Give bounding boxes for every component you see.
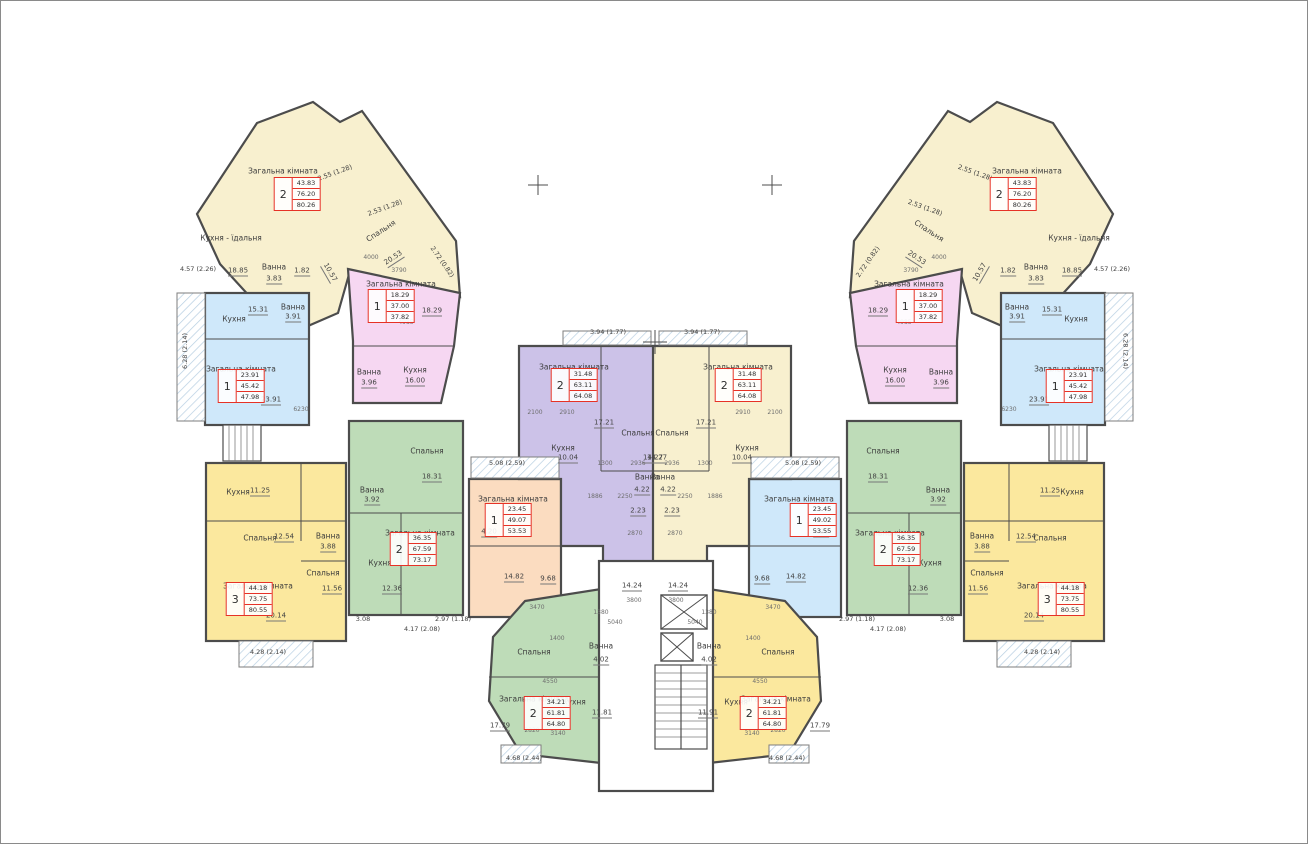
apartment-areas: 34.2161.8164.80 xyxy=(759,697,786,729)
staircase-right xyxy=(1049,425,1087,461)
apartment-areas: 23.4549.0253.55 xyxy=(809,504,836,536)
apartment-info-box: 344.1873.7580.55 xyxy=(1038,582,1085,616)
apartment-info-box: 243.8376.2080.26 xyxy=(990,177,1037,211)
apartment-area-value: 61.81 xyxy=(759,708,786,719)
apartment-area-value: 45.42 xyxy=(237,381,264,392)
apartment-info-box: 234.2161.8164.80 xyxy=(740,696,787,730)
apartment-areas: 18.2937.0037.82 xyxy=(915,290,942,322)
apartment-rooms-count: 2 xyxy=(991,178,1009,210)
apartment-area-value: 47.98 xyxy=(237,392,264,402)
apartment-rooms-count: 3 xyxy=(227,583,245,615)
apartment-area-value: 61.81 xyxy=(543,708,570,719)
apartment-rooms-count: 1 xyxy=(1047,370,1065,402)
apartment-info-box: 231.4863.1164.08 xyxy=(715,368,762,402)
apartment-area-value: 37.82 xyxy=(387,312,414,322)
building-core xyxy=(599,561,713,791)
apartment-area-value: 80.26 xyxy=(293,200,320,210)
apartment-areas: 31.4863.1164.08 xyxy=(734,369,761,401)
apartment-area-value: 64.08 xyxy=(734,391,761,401)
apartment-area-value: 45.42 xyxy=(1065,381,1092,392)
apartment-area-value: 37.82 xyxy=(915,312,942,322)
apartment-area-value: 49.02 xyxy=(809,515,836,526)
apartment-info-box: 123.4549.0253.55 xyxy=(790,503,837,537)
apartment-areas: 44.1873.7580.55 xyxy=(245,583,272,615)
apartment-2k-green-left[interactable] xyxy=(349,421,463,615)
apartment-1k-blue-center[interactable] xyxy=(749,479,841,617)
apartment-area-value: 73.17 xyxy=(893,555,920,565)
apartment-rooms-count: 2 xyxy=(875,533,893,565)
apartment-areas: 36.3567.5973.17 xyxy=(409,533,436,565)
apartment-area-value: 80.26 xyxy=(1009,200,1036,210)
apartment-area-value: 76.20 xyxy=(1009,189,1036,200)
apartment-1k-blue-top-left[interactable] xyxy=(205,293,309,425)
apartment-rooms-count: 2 xyxy=(525,697,543,729)
apartment-info-box: 118.2937.0037.82 xyxy=(896,289,943,323)
apartment-rooms-count: 2 xyxy=(391,533,409,565)
apartment-info-box: 118.2937.0037.82 xyxy=(368,289,415,323)
apartment-area-value: 73.75 xyxy=(1057,594,1084,605)
apartment-areas: 23.9145.4247.98 xyxy=(1065,370,1092,402)
apartment-info-box: 243.8376.2080.26 xyxy=(274,177,321,211)
apartment-areas: 31.4863.1164.08 xyxy=(570,369,597,401)
apartment-area-value: 37.00 xyxy=(387,301,414,312)
apartment-area-value: 80.55 xyxy=(1057,605,1084,615)
apartment-area-value: 36.35 xyxy=(409,533,436,544)
apartment-rooms-count: 2 xyxy=(716,369,734,401)
apartment-area-value: 34.21 xyxy=(543,697,570,708)
apartment-areas: 23.9145.4247.98 xyxy=(237,370,264,402)
apartment-area-value: 67.59 xyxy=(893,544,920,555)
apartment-area-value: 23.91 xyxy=(237,370,264,381)
apartment-area-value: 23.91 xyxy=(1065,370,1092,381)
apartment-area-value: 80.55 xyxy=(245,605,272,615)
staircase-left xyxy=(223,425,261,461)
apartment-areas: 34.2161.8164.80 xyxy=(543,697,570,729)
apartment-1k-blue-top-right[interactable] xyxy=(1001,293,1105,425)
apartment-area-value: 31.48 xyxy=(570,369,597,380)
apartment-info-box: 236.3567.5973.17 xyxy=(874,532,921,566)
apartment-area-value: 53.53 xyxy=(504,526,531,536)
apartment-area-value: 76.20 xyxy=(293,189,320,200)
apartment-area-value: 53.55 xyxy=(809,526,836,536)
apartment-area-value: 64.80 xyxy=(543,719,570,729)
apartment-area-value: 18.29 xyxy=(915,290,942,301)
floor-plan: Загальна кімнатаСпальня20.53Кухня - їдал… xyxy=(0,0,1308,844)
apartment-area-value: 44.18 xyxy=(1057,583,1084,594)
apartment-rooms-count: 1 xyxy=(791,504,809,536)
apartment-area-value: 73.75 xyxy=(245,594,272,605)
survey-cross-marks xyxy=(528,175,782,354)
apartment-area-value: 73.17 xyxy=(409,555,436,565)
apartment-area-value: 49.07 xyxy=(504,515,531,526)
apartment-area-value: 64.80 xyxy=(759,719,786,729)
apartment-rooms-count: 2 xyxy=(741,697,759,729)
apartment-info-box: 236.3567.5973.17 xyxy=(390,532,437,566)
apartment-area-value: 43.83 xyxy=(293,178,320,189)
apartment-info-box: 231.4863.1164.08 xyxy=(551,368,598,402)
apartment-area-value: 43.83 xyxy=(1009,178,1036,189)
apartment-areas: 36.3567.5973.17 xyxy=(893,533,920,565)
apartment-areas: 43.8376.2080.26 xyxy=(1009,178,1036,210)
apartment-1k-peach-center[interactable] xyxy=(469,479,561,617)
apartment-2k-green-right[interactable] xyxy=(847,421,961,615)
apartment-area-value: 67.59 xyxy=(409,544,436,555)
apartment-area-value: 63.11 xyxy=(570,380,597,391)
apartment-area-value: 37.00 xyxy=(915,301,942,312)
apartment-rooms-count: 3 xyxy=(1039,583,1057,615)
apartment-areas: 18.2937.0037.82 xyxy=(387,290,414,322)
apartment-info-box: 123.9145.4247.98 xyxy=(218,369,265,403)
staircase-core xyxy=(655,665,707,749)
apartment-area-value: 64.08 xyxy=(570,391,597,401)
apartment-areas: 44.1873.7580.55 xyxy=(1057,583,1084,615)
apartment-info-box: 123.9145.4247.98 xyxy=(1046,369,1093,403)
floor-plan-drawing xyxy=(1,1,1308,844)
apartment-area-value: 36.35 xyxy=(893,533,920,544)
apartment-info-box: 344.1873.7580.55 xyxy=(226,582,273,616)
apartment-area-value: 47.98 xyxy=(1065,392,1092,402)
apartment-area-value: 44.18 xyxy=(245,583,272,594)
apartment-area-value: 23.45 xyxy=(504,504,531,515)
apartment-rooms-count: 1 xyxy=(369,290,387,322)
apartment-info-box: 123.4549.0753.53 xyxy=(485,503,532,537)
apartment-rooms-count: 1 xyxy=(219,370,237,402)
apartment-rooms-count: 1 xyxy=(897,290,915,322)
apartment-rooms-count: 1 xyxy=(486,504,504,536)
apartment-areas: 43.8376.2080.26 xyxy=(293,178,320,210)
apartment-area-value: 34.21 xyxy=(759,697,786,708)
apartment-info-box: 234.2161.8164.80 xyxy=(524,696,571,730)
apartment-area-value: 31.48 xyxy=(734,369,761,380)
apartment-area-value: 63.11 xyxy=(734,380,761,391)
apartment-area-value: 23.45 xyxy=(809,504,836,515)
apartment-rooms-count: 2 xyxy=(552,369,570,401)
apartment-area-value: 18.29 xyxy=(387,290,414,301)
apartment-areas: 23.4549.0753.53 xyxy=(504,504,531,536)
apartment-rooms-count: 2 xyxy=(275,178,293,210)
